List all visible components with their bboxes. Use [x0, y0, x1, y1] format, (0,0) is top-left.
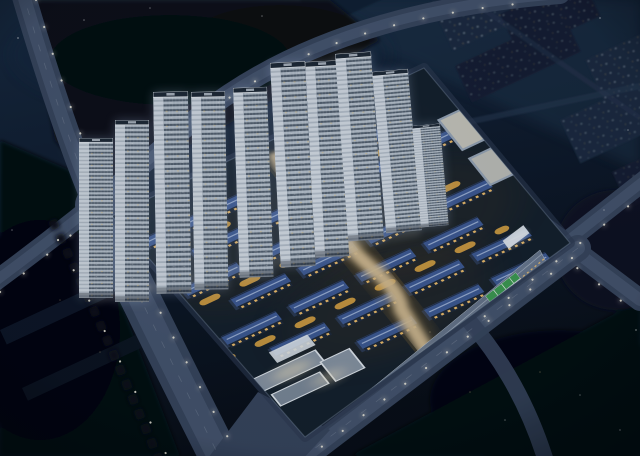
blue-cast-overlay	[0, 0, 640, 456]
rendering-canvas	[0, 0, 640, 456]
night-aerial-rendering	[0, 0, 640, 456]
